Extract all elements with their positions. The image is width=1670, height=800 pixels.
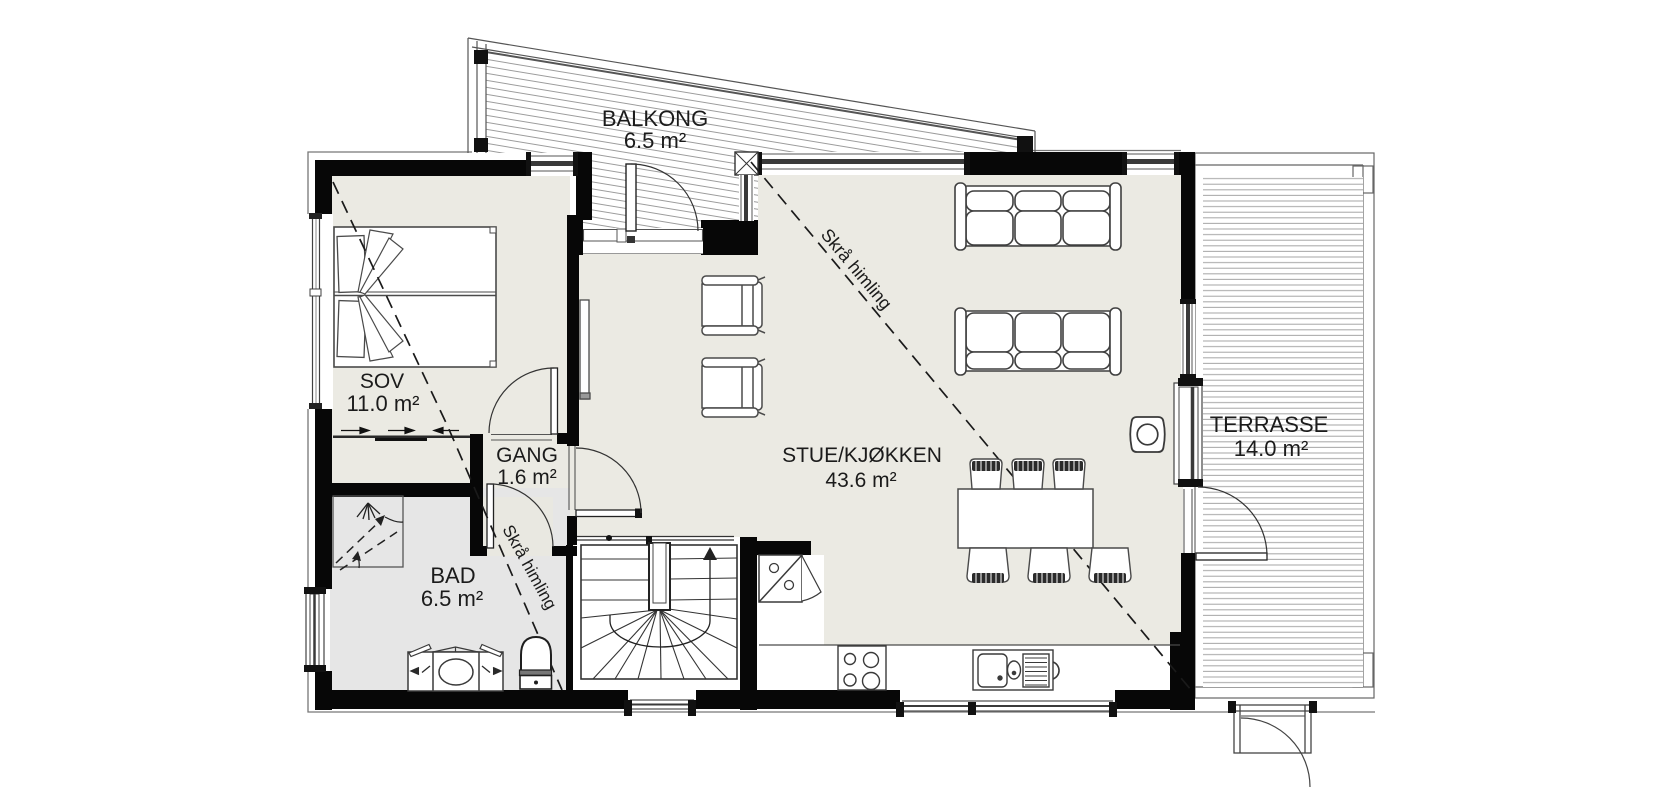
svg-text:SOV: SOV	[360, 370, 404, 393]
svg-text:TERRASSE: TERRASSE	[1210, 412, 1329, 437]
svg-text:STUE/KJØKKEN: STUE/KJØKKEN	[782, 444, 942, 467]
svg-text:6.5 m²: 6.5 m²	[624, 128, 686, 153]
svg-text:43.6 m²: 43.6 m²	[825, 469, 896, 492]
svg-text:11.0 m²: 11.0 m²	[347, 391, 420, 416]
svg-text:1.6 m²: 1.6 m²	[497, 466, 557, 489]
svg-text:BAD: BAD	[430, 563, 475, 588]
svg-text:GANG: GANG	[496, 444, 558, 467]
svg-text:14.0 m²: 14.0 m²	[1234, 436, 1309, 461]
svg-text:6.5 m²: 6.5 m²	[421, 586, 483, 611]
